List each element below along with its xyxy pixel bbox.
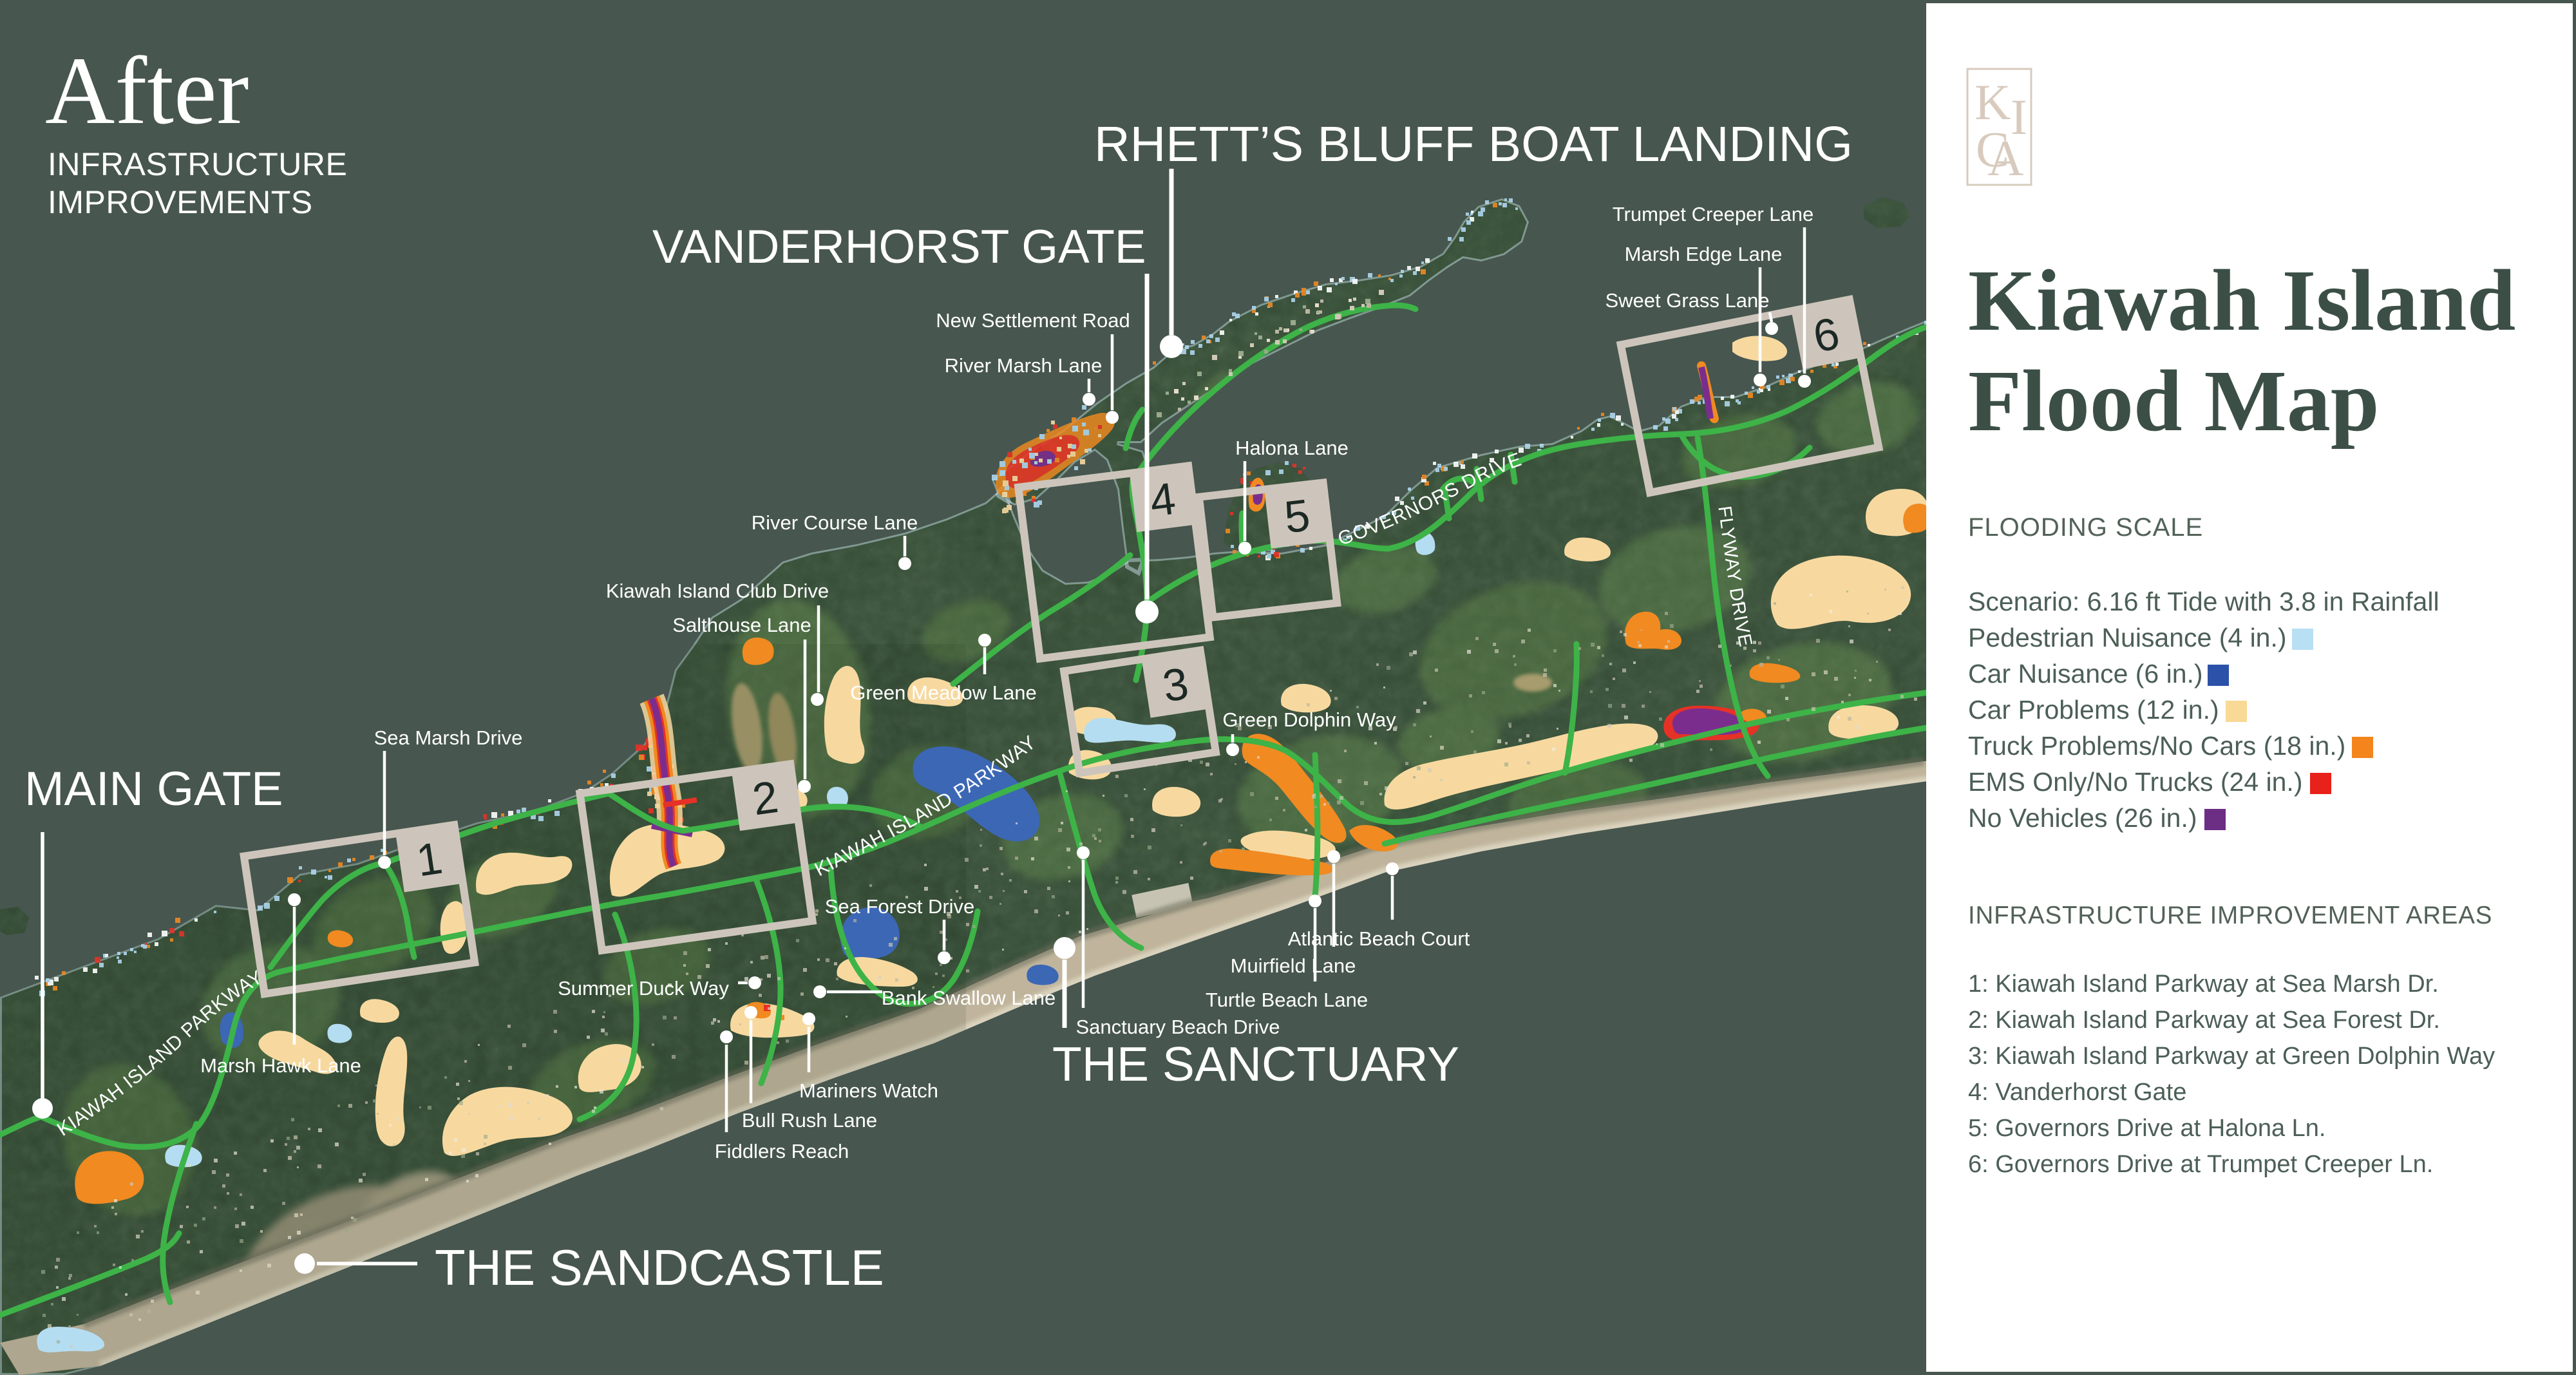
svg-text:New Settlement Road: New Settlement Road (936, 309, 1130, 332)
svg-text:Sea Marsh Drive: Sea Marsh Drive (374, 726, 523, 749)
svg-text:Flood Map: Flood Map (1968, 353, 2380, 450)
svg-text:Green Dolphin Way: Green Dolphin Way (1222, 708, 1396, 731)
svg-text:Mariners Watch: Mariners Watch (799, 1079, 938, 1102)
svg-text:FLOODING SCALE: FLOODING SCALE (1968, 513, 2203, 542)
svg-text:6: Governors Drive at Trumpet: 6: Governors Drive at Trumpet Creeper Ln… (1968, 1151, 2433, 1178)
svg-text:After: After (45, 37, 249, 144)
svg-text:Summer Duck Way: Summer Duck Way (558, 977, 729, 1000)
svg-text:Pedestrian Nuisance (4 in.): Pedestrian Nuisance (4 in.) (1968, 623, 2287, 652)
svg-text:Marsh Edge Lane: Marsh Edge Lane (1625, 243, 1783, 265)
svg-text:Sanctuary Beach Drive: Sanctuary Beach Drive (1075, 1016, 1280, 1038)
svg-text:MAIN GATE: MAIN GATE (24, 762, 283, 815)
svg-text:No Vehicles (26 in.): No Vehicles (26 in.) (1968, 803, 2197, 833)
svg-text:EMS Only/No Trucks (24 in.): EMS Only/No Trucks (24 in.) (1968, 767, 2302, 797)
svg-text:Salthouse Lane: Salthouse Lane (672, 614, 811, 636)
svg-text:Sea Forest Drive: Sea Forest Drive (825, 895, 975, 918)
svg-text:RHETT’S BLUFF BOAT LANDING: RHETT’S BLUFF BOAT LANDING (1094, 117, 1853, 172)
svg-text:A: A (1987, 130, 2023, 186)
svg-text:2: Kiawah Island Parkway at Se: 2: Kiawah Island Parkway at Sea Forest D… (1968, 1007, 2440, 1034)
svg-text:THE SANDCASTLE: THE SANDCASTLE (435, 1239, 884, 1296)
svg-text:THE SANCTUARY: THE SANCTUARY (1052, 1037, 1459, 1091)
svg-text:River Marsh Lane: River Marsh Lane (945, 354, 1103, 377)
svg-text:Green Meadow Lane: Green Meadow Lane (850, 681, 1037, 704)
svg-text:Halona Lane: Halona Lane (1235, 437, 1349, 459)
svg-text:Car Nuisance (6 in.): Car Nuisance (6 in.) (1968, 659, 2203, 688)
svg-text:Marsh Hawk Lane: Marsh Hawk Lane (200, 1054, 361, 1077)
svg-text:VANDERHORST GATE: VANDERHORST GATE (652, 221, 1146, 273)
svg-text:5: Governors Drive at Halona L: 5: Governors Drive at Halona Ln. (1968, 1115, 2326, 1142)
svg-text:Bull Rush Lane: Bull Rush Lane (742, 1109, 877, 1132)
svg-text:3: Kiawah Island Parkway at Gr: 3: Kiawah Island Parkway at Green Dolphi… (1968, 1043, 2495, 1070)
svg-text:Scenario: 6.16 ft Tide with 3.: Scenario: 6.16 ft Tide with 3.8 in Rainf… (1968, 587, 2439, 616)
svg-text:IMPROVEMENTS: IMPROVEMENTS (48, 184, 313, 220)
svg-text:River Course Lane: River Course Lane (752, 511, 918, 534)
svg-text:Car Problems (12 in.): Car Problems (12 in.) (1968, 695, 2219, 725)
svg-text:Trumpet Creeper Lane: Trumpet Creeper Lane (1613, 203, 1814, 225)
svg-text:Kiawah Island Club Drive: Kiawah Island Club Drive (606, 580, 829, 602)
svg-text:INFRASTRUCTURE: INFRASTRUCTURE (48, 146, 347, 182)
svg-text:Fiddlers Reach: Fiddlers Reach (715, 1140, 849, 1162)
svg-text:Muirfield Lane: Muirfield Lane (1231, 954, 1356, 977)
svg-text:1: Kiawah Island Parkway at Se: 1: Kiawah Island Parkway at Sea Marsh Dr… (1968, 971, 2439, 998)
svg-text:Truck Problems/No Cars (18 in.: Truck Problems/No Cars (18 in.) (1968, 731, 2345, 761)
svg-text:INFRASTRUCTURE IMPROVEMENT ARE: INFRASTRUCTURE IMPROVEMENT AREAS (1968, 902, 2492, 929)
svg-text:Kiawah Island: Kiawah Island (1968, 252, 2515, 349)
svg-text:4: Vanderhorst Gate: 4: Vanderhorst Gate (1968, 1079, 2186, 1106)
svg-text:Bank Swallow Lane: Bank Swallow Lane (882, 987, 1056, 1009)
svg-text:Sweet Grass Lane: Sweet Grass Lane (1605, 289, 1769, 312)
svg-text:Turtle Beach Lane: Turtle Beach Lane (1206, 989, 1368, 1011)
